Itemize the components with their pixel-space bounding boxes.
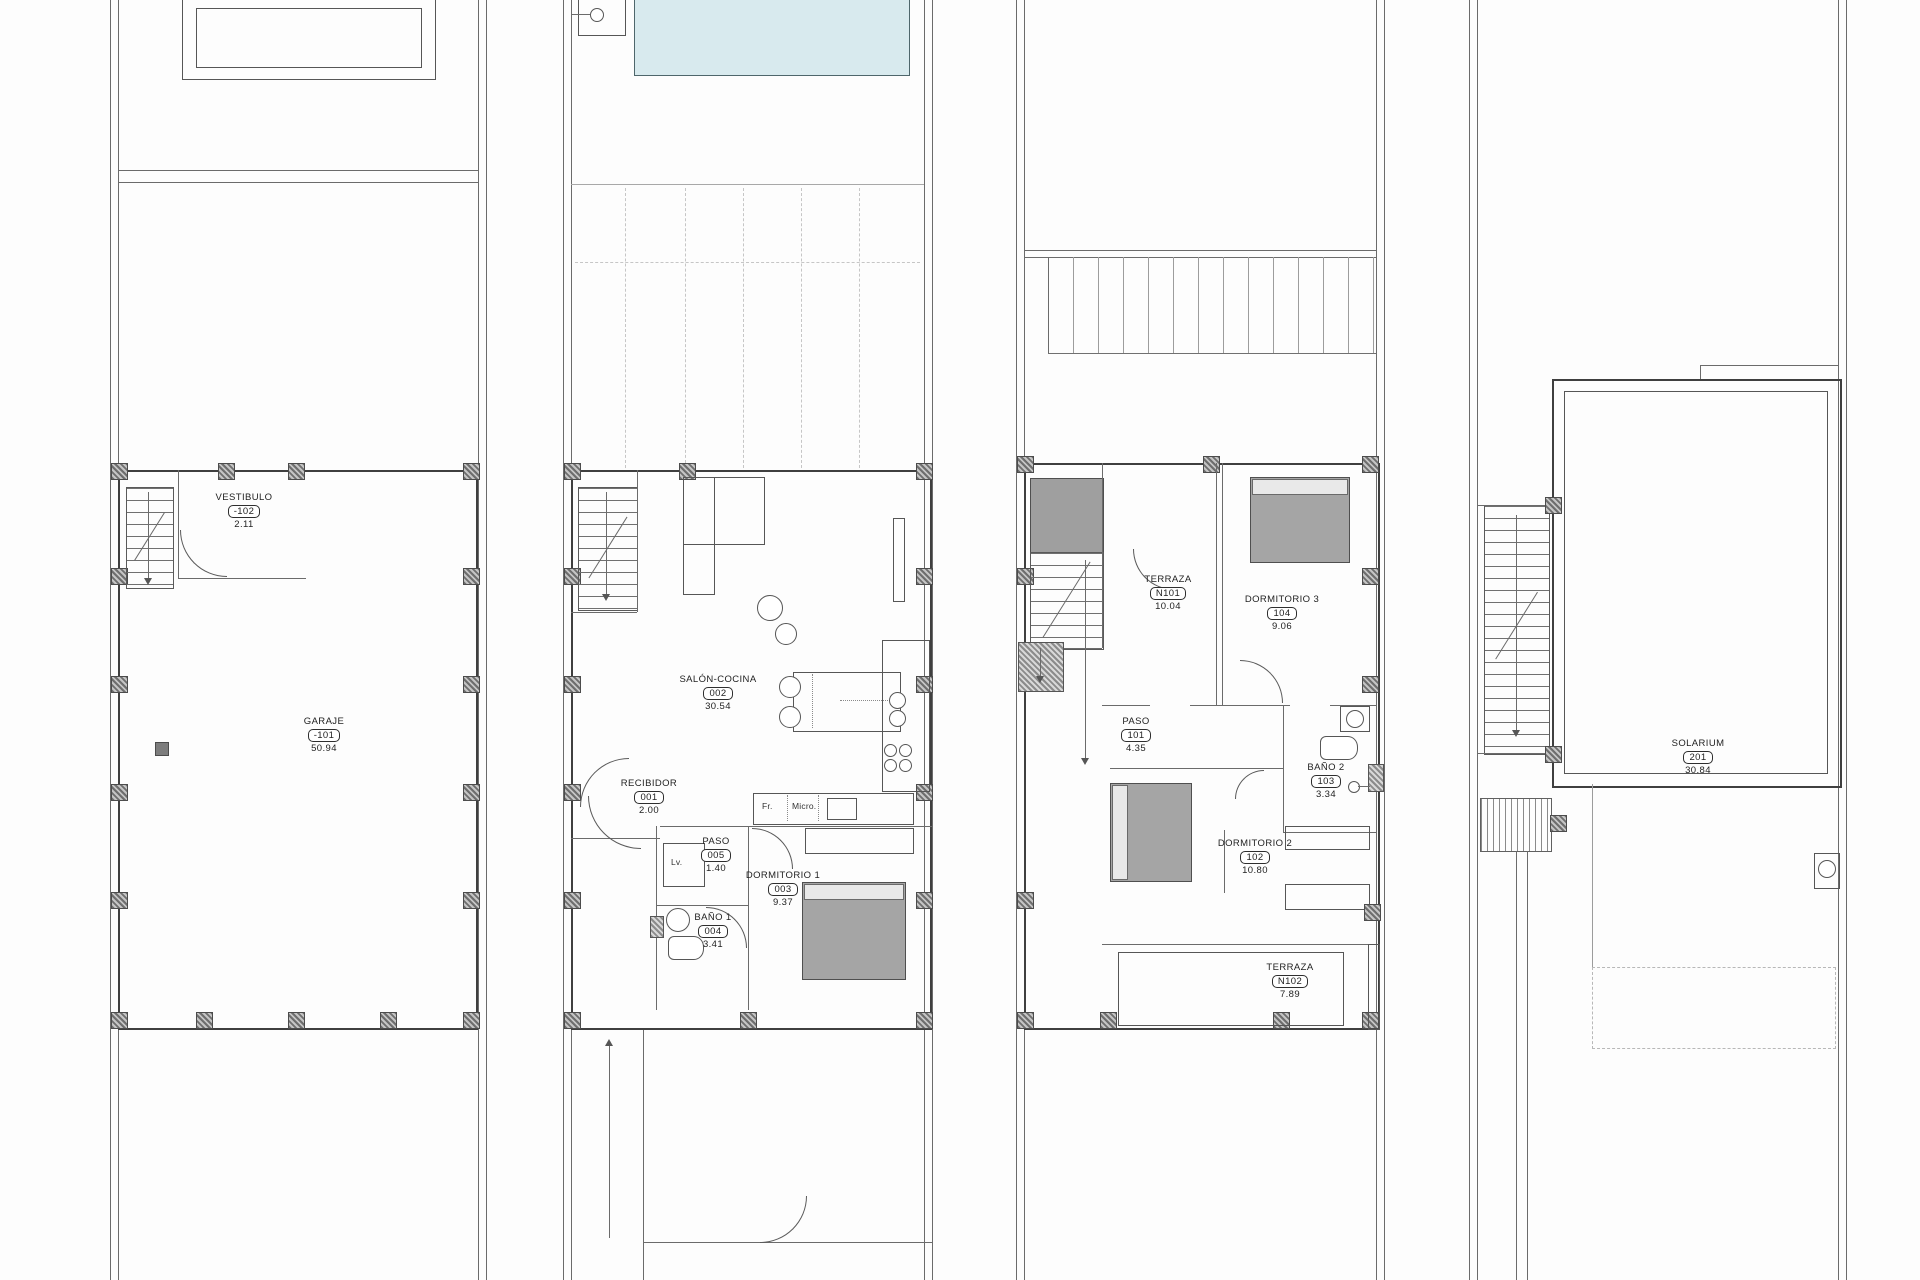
room-code-box: 201	[1683, 751, 1712, 764]
pergola-dashed-outline	[1592, 967, 1836, 1049]
room-area: 30.54	[658, 701, 778, 713]
room-name: PASO	[656, 836, 776, 848]
room-code-box: 001	[634, 791, 663, 804]
room-code-box: 003	[768, 883, 797, 896]
pergola-dash-line	[859, 188, 860, 468]
patio-outline-inner	[196, 8, 422, 68]
room-code-box: -102	[228, 505, 261, 518]
stair-arrow-head	[1081, 758, 1089, 765]
pillar	[1362, 676, 1379, 693]
boundary-line	[478, 0, 479, 1280]
stair-arrow-line	[1516, 515, 1517, 733]
room-name: BAÑO 1	[653, 912, 773, 924]
shower-tick	[572, 14, 590, 15]
floor-plan-sheet: VESTIBULO -102 2.11 GARAJE -101 50.94	[0, 0, 1920, 1280]
door-arc	[760, 1196, 807, 1243]
parapet-line	[1700, 365, 1701, 379]
hob-burner	[884, 744, 897, 757]
microwave-label: Micro.	[792, 802, 816, 811]
pillar	[288, 1012, 305, 1029]
room-code-box: N102	[1272, 975, 1308, 988]
pillar	[564, 784, 581, 801]
stair-cut-line	[1496, 592, 1539, 660]
pillar	[196, 1012, 213, 1029]
floor-lamp	[775, 623, 797, 645]
boundary-line	[932, 0, 933, 1280]
pillar	[463, 568, 480, 585]
wall	[660, 826, 932, 827]
pergola-dash-line	[575, 262, 920, 263]
wall	[1110, 768, 1283, 769]
pillar	[463, 1012, 480, 1029]
stair-upper-flight	[1030, 478, 1104, 554]
pillar	[1362, 568, 1379, 585]
pillar	[564, 1012, 581, 1029]
pillar	[463, 784, 480, 801]
room-area: 3.41	[653, 939, 773, 951]
oven	[827, 798, 857, 820]
pillar	[463, 676, 480, 693]
boundary-line	[1016, 0, 1017, 1280]
room-code-box: 005	[701, 849, 730, 862]
room-code-box: 101	[1121, 729, 1150, 742]
stair-flight	[126, 487, 174, 589]
room-area: 30.84	[1638, 765, 1758, 777]
stair-cut-line	[134, 512, 165, 561]
boundary-line	[1469, 0, 1470, 1280]
pillar	[463, 463, 480, 480]
stair-flight	[1484, 505, 1550, 755]
room-label-bano-1: BAÑO 1 004 3.41	[653, 912, 773, 951]
vestibule-wall	[178, 470, 179, 578]
pillar	[564, 676, 581, 693]
room-area: 9.06	[1222, 621, 1342, 633]
louver-grille	[1480, 798, 1552, 852]
boundary-line	[1846, 0, 1847, 1280]
solarium-inner-wall	[1564, 391, 1828, 774]
room-name: TERRAZA	[1108, 574, 1228, 586]
room-label-garaje: GARAJE -101 50.94	[264, 716, 384, 755]
room-label-paso-101: PASO 101 4.35	[1076, 716, 1196, 755]
pillar	[1545, 746, 1562, 763]
chair	[779, 706, 801, 728]
room-code-box: N101	[1150, 587, 1186, 600]
louver-hatch	[1018, 642, 1064, 692]
room-name: TERRAZA	[1230, 962, 1350, 974]
vestibule-wall	[178, 578, 306, 579]
room-area: 7.89	[1230, 989, 1350, 1001]
down-arrow-line	[1040, 648, 1041, 678]
wall	[1516, 851, 1517, 1280]
room-code-box: -101	[308, 729, 341, 742]
hob-burner	[884, 759, 897, 772]
boundary-line	[563, 0, 564, 1280]
pillar	[1545, 497, 1562, 514]
pillar	[111, 1012, 128, 1029]
stair-wall	[1102, 463, 1103, 648]
stair-wall	[1477, 505, 1552, 506]
pergola-dash-line	[685, 188, 686, 468]
floor-drain	[155, 742, 169, 756]
bed-pillow	[1112, 785, 1128, 880]
lot-line	[118, 182, 478, 183]
pillar	[916, 1012, 933, 1029]
room-area: 2.11	[184, 519, 304, 531]
counter-divider	[818, 795, 819, 821]
room-area: 9.37	[723, 897, 843, 909]
roof-edge-line	[1592, 784, 1593, 967]
pillar	[1017, 456, 1034, 473]
stair-wall	[1477, 753, 1552, 754]
room-code-box: 102	[1240, 851, 1269, 864]
side-table	[757, 595, 783, 621]
pillar	[916, 892, 933, 909]
room-area: 3.34	[1266, 789, 1386, 801]
pillar	[1203, 456, 1220, 473]
terrace-line	[571, 184, 924, 185]
boundary-line	[1477, 0, 1478, 1280]
lot-line	[118, 170, 478, 171]
room-name: RECIBIDOR	[589, 778, 709, 790]
room-label-terraza-n102: TERRAZA N102 7.89	[1230, 962, 1350, 1001]
room-area: 10.80	[1195, 865, 1315, 877]
swimming-pool	[634, 0, 910, 76]
pillar	[1100, 1012, 1117, 1029]
counter-divider	[787, 795, 788, 821]
pergola-edge	[1048, 257, 1049, 353]
room-label-terraza-n101: TERRAZA N101 10.04	[1108, 574, 1228, 613]
pillar	[218, 463, 235, 480]
room-label-dormitorio-3: DORMITORIO 3 104 9.06	[1222, 594, 1342, 633]
stair-wall	[571, 612, 637, 613]
pillar	[288, 463, 305, 480]
room-label-bano-2: BAÑO 2 103 3.34	[1266, 762, 1386, 801]
wall	[1102, 705, 1150, 706]
stair-arrow-head	[602, 594, 610, 601]
wall	[1102, 944, 1376, 945]
pillar	[1364, 904, 1381, 921]
room-name: DORMITORIO 1	[723, 870, 843, 882]
stair-arrow-line	[606, 492, 607, 596]
stair-wall	[637, 470, 638, 612]
room-code-box: 104	[1267, 607, 1296, 620]
sofa-chaise	[683, 477, 715, 595]
room-label-recibidor: RECIBIDOR 001 2.00	[589, 778, 709, 817]
fridge-label: Fr.	[762, 802, 773, 811]
pillar	[564, 463, 581, 480]
pillar	[111, 463, 128, 480]
room-name: DORMITORIO 2	[1195, 838, 1315, 850]
pillar	[111, 892, 128, 909]
wall	[1527, 851, 1528, 1280]
room-label-vestibulo: VESTIBULO -102 2.11	[184, 492, 304, 531]
room-area: 50.94	[264, 743, 384, 755]
room-name: GARAJE	[264, 716, 384, 728]
sink-bowl	[889, 692, 906, 709]
stair-cut-line	[1043, 561, 1091, 637]
stair-flight	[1030, 552, 1104, 650]
lot-line	[1024, 250, 1376, 251]
stair-cut-line	[589, 516, 628, 578]
terrace-wall	[1368, 944, 1380, 1030]
room-label-solarium: SOLARIUM 201 30.84	[1638, 738, 1758, 777]
hob-burner	[899, 759, 912, 772]
room-name: VESTIBULO	[184, 492, 304, 504]
pillar	[463, 892, 480, 909]
pillar	[916, 568, 933, 585]
down-arrow-head	[1036, 676, 1044, 683]
room-area: 4.35	[1076, 743, 1196, 755]
pergola-dash-line	[743, 188, 744, 468]
room-area: 2.00	[589, 805, 709, 817]
stair-flight	[578, 487, 638, 611]
sink-bowl	[889, 710, 906, 727]
room-code-box: 004	[698, 925, 727, 938]
room-name: PASO	[1076, 716, 1196, 728]
pillar	[1017, 892, 1034, 909]
toilet	[1320, 736, 1358, 760]
entry-arrow-line	[609, 1046, 610, 1238]
pillar	[1362, 456, 1379, 473]
room-code-box: 103	[1311, 775, 1340, 788]
pillar	[1550, 815, 1567, 832]
room-code-box: 002	[703, 687, 732, 700]
table-center-line	[812, 674, 813, 728]
parapet-line	[1700, 365, 1838, 366]
wall	[643, 1242, 932, 1243]
room-name: DORMITORIO 3	[1222, 594, 1342, 606]
stair-arrow-head	[144, 578, 152, 585]
pillar	[564, 892, 581, 909]
room-area: 10.04	[1108, 601, 1228, 613]
wardrobe	[1285, 884, 1370, 910]
boundary-line	[1384, 0, 1385, 1280]
entry-arrow-head	[605, 1039, 613, 1046]
pillar	[380, 1012, 397, 1029]
stair-arrow-head	[1512, 730, 1520, 737]
room-name: SOLARIUM	[1638, 738, 1758, 750]
tv-unit	[893, 518, 905, 602]
room-name: SALÓN-COCINA	[658, 674, 778, 686]
hob-burner	[899, 744, 912, 757]
kitchen-island	[805, 828, 914, 854]
roof-sink-bowl	[1818, 860, 1836, 878]
pergola-louvers	[1048, 257, 1376, 354]
pillar	[111, 784, 128, 801]
chair	[779, 676, 801, 698]
washbasin	[1346, 710, 1364, 728]
shower-symbol-icon	[590, 8, 604, 22]
boundary-line	[110, 0, 111, 1280]
room-label-dormitorio-2: DORMITORIO 2 102 10.80	[1195, 838, 1315, 877]
boundary-line	[486, 0, 487, 1280]
pillar	[1017, 1012, 1034, 1029]
stair-arrow-line	[148, 492, 149, 578]
pillar	[740, 1012, 757, 1029]
room-name: BAÑO 2	[1266, 762, 1386, 774]
pillar	[111, 676, 128, 693]
wall	[1190, 705, 1290, 706]
pergola-dash-line	[625, 188, 626, 468]
pergola-dash-line	[801, 188, 802, 468]
room-label-salon-cocina: SALÓN-COCINA 002 30.54	[658, 674, 778, 713]
pillar	[916, 463, 933, 480]
room-label-dormitorio-1: DORMITORIO 1 003 9.37	[723, 870, 843, 909]
bed-pillow	[1252, 479, 1348, 495]
